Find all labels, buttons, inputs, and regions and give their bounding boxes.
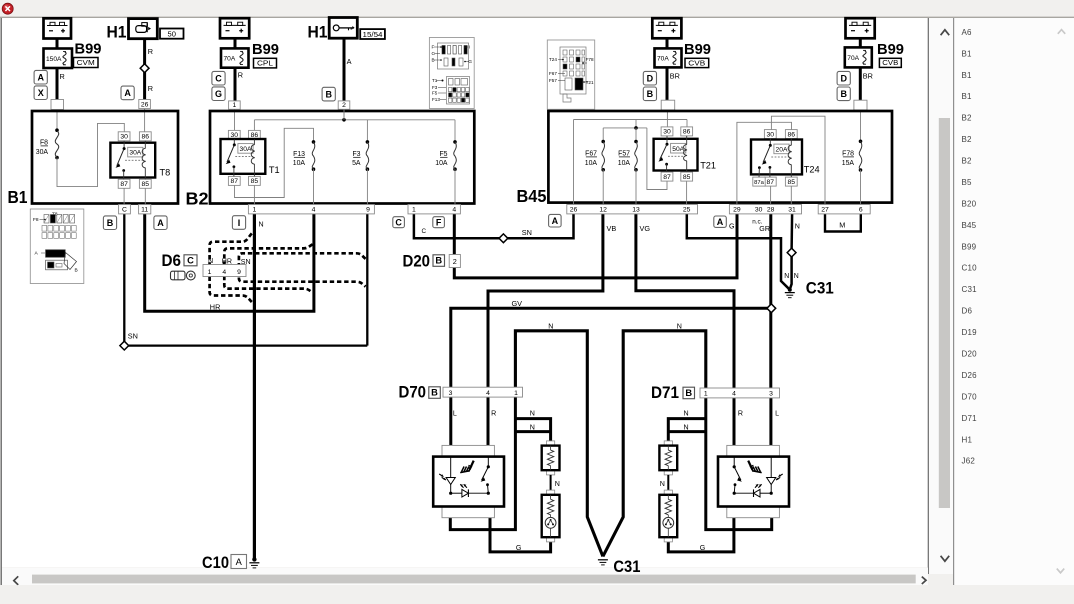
- svg-text:5A: 5A: [352, 160, 361, 167]
- svg-text:85: 85: [251, 178, 259, 185]
- svg-text:B99: B99: [684, 41, 711, 58]
- svg-text:T21: T21: [586, 80, 594, 85]
- svg-text:B2: B2: [962, 114, 973, 123]
- svg-text:B: B: [435, 256, 442, 266]
- svg-text:3: 3: [769, 391, 773, 398]
- svg-text:85: 85: [788, 179, 796, 186]
- svg-text:GV: GV: [512, 299, 523, 308]
- svg-text:N: N: [548, 322, 553, 330]
- svg-text:28: 28: [767, 207, 775, 214]
- svg-text:10A: 10A: [585, 160, 598, 167]
- svg-text:86: 86: [142, 134, 150, 141]
- svg-text:1: 1: [704, 391, 708, 398]
- svg-text:A6: A6: [962, 28, 973, 37]
- svg-text:N: N: [530, 424, 535, 432]
- svg-text:4: 4: [222, 269, 226, 276]
- svg-text:G: G: [700, 544, 706, 552]
- svg-text:87: 87: [120, 181, 128, 188]
- svg-text:F13: F13: [432, 97, 440, 102]
- svg-text:R: R: [238, 71, 243, 80]
- svg-text:F5: F5: [432, 91, 438, 96]
- svg-text:11: 11: [141, 207, 148, 214]
- svg-text:70A: 70A: [224, 56, 236, 63]
- svg-text:87: 87: [231, 178, 239, 185]
- svg-text:27: 27: [821, 207, 829, 214]
- svg-text:N: N: [795, 223, 800, 231]
- svg-text:T8: T8: [160, 168, 171, 178]
- svg-text:A: A: [37, 73, 44, 83]
- svg-text:F13: F13: [293, 151, 305, 158]
- svg-text:B1: B1: [962, 71, 973, 80]
- svg-text:N: N: [208, 257, 213, 265]
- svg-text:F3: F3: [352, 151, 360, 158]
- svg-text:F67: F67: [549, 71, 557, 76]
- svg-text:B: B: [840, 89, 847, 99]
- svg-text:B2: B2: [962, 135, 973, 144]
- svg-text:CVB: CVB: [688, 58, 705, 67]
- svg-text:CVB: CVB: [882, 58, 898, 67]
- svg-text:G: G: [516, 544, 522, 552]
- svg-text:T1: T1: [269, 165, 280, 175]
- svg-text:C: C: [422, 228, 427, 235]
- svg-text:T24: T24: [549, 57, 557, 62]
- svg-text:25: 25: [683, 207, 691, 214]
- svg-text:29: 29: [733, 207, 741, 214]
- svg-text:20A: 20A: [776, 147, 788, 154]
- svg-text:87: 87: [663, 174, 671, 181]
- svg-text:D: D: [647, 74, 654, 84]
- svg-text:30: 30: [767, 131, 775, 138]
- svg-text:T21: T21: [700, 161, 716, 171]
- svg-text:B: B: [325, 89, 332, 99]
- svg-text:N: N: [677, 322, 682, 330]
- svg-text:B99: B99: [252, 41, 279, 58]
- svg-text:4: 4: [732, 391, 736, 398]
- svg-text:R: R: [60, 72, 65, 81]
- svg-text:G: G: [468, 59, 472, 64]
- svg-text:C31: C31: [806, 279, 834, 298]
- svg-text:F78: F78: [586, 57, 594, 62]
- svg-text:A: A: [124, 88, 131, 98]
- svg-text:D70: D70: [399, 383, 427, 402]
- svg-text:2: 2: [453, 257, 457, 266]
- svg-text:B: B: [685, 388, 692, 398]
- svg-text:9: 9: [366, 207, 370, 214]
- svg-text:26: 26: [141, 101, 149, 108]
- svg-text:9: 9: [237, 269, 241, 276]
- svg-text:VB: VB: [607, 224, 617, 233]
- svg-text:A: A: [236, 557, 243, 567]
- svg-text:70A: 70A: [657, 56, 669, 63]
- svg-text:A: A: [552, 216, 559, 226]
- svg-text:30: 30: [755, 207, 763, 214]
- svg-text:B45: B45: [517, 186, 547, 206]
- svg-text:C: C: [122, 207, 127, 214]
- svg-text:F: F: [436, 218, 442, 228]
- svg-text:N: N: [684, 424, 689, 432]
- svg-text:SN: SN: [522, 228, 532, 237]
- svg-text:C: C: [187, 255, 194, 265]
- svg-text:30: 30: [120, 134, 128, 141]
- svg-text:R: R: [148, 47, 153, 56]
- svg-text:C10: C10: [202, 553, 229, 572]
- svg-text:B1: B1: [962, 92, 973, 101]
- svg-text:D71: D71: [962, 414, 978, 423]
- svg-text:HR: HR: [222, 257, 232, 265]
- svg-text:B2: B2: [962, 157, 973, 166]
- svg-text:B2: B2: [186, 189, 209, 209]
- svg-text:1: 1: [514, 390, 518, 397]
- svg-text:GR: GR: [759, 225, 770, 233]
- svg-text:B99: B99: [877, 41, 904, 58]
- svg-text:F57: F57: [549, 78, 557, 83]
- svg-text:N: N: [684, 410, 689, 418]
- svg-text:I: I: [469, 45, 470, 50]
- svg-text:2: 2: [342, 102, 346, 109]
- svg-text:D20: D20: [403, 252, 431, 271]
- svg-text:R: R: [738, 410, 743, 418]
- svg-text:15A: 15A: [842, 160, 855, 167]
- svg-text:T24: T24: [804, 165, 820, 175]
- svg-text:M: M: [839, 221, 845, 230]
- svg-text:31: 31: [788, 207, 796, 214]
- svg-text:N: N: [784, 273, 789, 280]
- svg-text:1: 1: [253, 207, 257, 214]
- svg-text:B1: B1: [962, 49, 973, 58]
- svg-text:1: 1: [412, 207, 416, 214]
- svg-text:N: N: [259, 221, 264, 229]
- svg-text:13: 13: [632, 207, 640, 214]
- svg-text:N: N: [794, 273, 799, 280]
- svg-text:26: 26: [570, 207, 578, 214]
- svg-text:87: 87: [767, 179, 775, 186]
- svg-text:D71: D71: [651, 383, 679, 402]
- svg-text:F78: F78: [842, 151, 854, 158]
- svg-text:H1: H1: [107, 23, 127, 42]
- svg-text:3: 3: [449, 390, 453, 397]
- svg-text:50A: 50A: [672, 146, 684, 153]
- svg-text:F8: F8: [33, 217, 39, 223]
- svg-text:C: C: [395, 218, 402, 228]
- svg-text:B99: B99: [75, 41, 102, 58]
- svg-text:SN: SN: [241, 258, 251, 266]
- svg-text:C31: C31: [962, 285, 978, 294]
- svg-text:B45: B45: [962, 221, 977, 230]
- svg-text:C: C: [215, 74, 222, 84]
- svg-text:10A: 10A: [435, 160, 448, 167]
- svg-text:H1: H1: [308, 23, 328, 42]
- svg-text:CPL: CPL: [257, 59, 273, 68]
- svg-text:G: G: [215, 89, 222, 99]
- svg-text:10A: 10A: [618, 160, 631, 167]
- svg-text:SN: SN: [128, 332, 138, 341]
- svg-text:B99: B99: [962, 242, 977, 251]
- svg-text:G: G: [729, 223, 735, 231]
- svg-text:30A: 30A: [129, 150, 141, 157]
- svg-text:86: 86: [788, 131, 796, 138]
- svg-text:15/54: 15/54: [363, 30, 383, 39]
- svg-text:4: 4: [452, 207, 456, 214]
- svg-text:12: 12: [599, 207, 607, 214]
- svg-text:I: I: [238, 218, 241, 228]
- svg-text:L: L: [453, 410, 457, 418]
- svg-text:A: A: [347, 57, 352, 66]
- svg-text:D6: D6: [162, 251, 182, 270]
- svg-text:1: 1: [233, 102, 237, 109]
- svg-text:B: B: [647, 89, 654, 99]
- svg-text:J62: J62: [962, 457, 976, 466]
- svg-text:F57: F57: [618, 151, 630, 158]
- svg-text:6: 6: [859, 207, 863, 214]
- svg-text:4: 4: [312, 207, 316, 214]
- svg-text:F3: F3: [432, 85, 438, 90]
- svg-text:N: N: [555, 480, 560, 488]
- svg-text:86: 86: [683, 129, 691, 136]
- svg-text:N: N: [530, 410, 535, 418]
- svg-text:R: R: [148, 84, 153, 93]
- svg-text:30A: 30A: [36, 149, 49, 156]
- svg-text:10A: 10A: [293, 160, 306, 167]
- svg-text:A: A: [157, 218, 164, 228]
- svg-text:B: B: [75, 268, 78, 274]
- svg-text:85: 85: [142, 181, 150, 188]
- svg-text:F5: F5: [439, 151, 447, 158]
- svg-text:B5: B5: [962, 178, 973, 187]
- svg-text:B: B: [107, 218, 114, 228]
- svg-text:30A: 30A: [240, 146, 252, 153]
- svg-text:D70: D70: [962, 392, 978, 401]
- svg-text:C10: C10: [962, 264, 978, 273]
- svg-text:4: 4: [486, 390, 490, 397]
- svg-text:B: B: [431, 388, 438, 398]
- svg-text:30: 30: [663, 129, 671, 136]
- svg-text:L: L: [775, 410, 779, 418]
- svg-text:1: 1: [208, 269, 212, 276]
- svg-text:HR: HR: [210, 303, 221, 312]
- svg-text:D6: D6: [962, 307, 973, 316]
- svg-text:R: R: [491, 410, 496, 418]
- svg-text:50: 50: [167, 29, 175, 38]
- svg-text:70A: 70A: [847, 55, 859, 62]
- svg-text:F8: F8: [40, 140, 48, 147]
- svg-text:CVM: CVM: [77, 58, 95, 67]
- svg-text:F67: F67: [585, 151, 597, 158]
- svg-text:VG: VG: [640, 224, 651, 233]
- svg-text:X: X: [38, 88, 44, 98]
- svg-text:85: 85: [683, 174, 691, 181]
- svg-text:A: A: [717, 217, 724, 227]
- svg-text:87a: 87a: [754, 180, 764, 186]
- svg-text:D26: D26: [962, 371, 978, 380]
- svg-text:D19: D19: [962, 328, 978, 337]
- svg-text:150A: 150A: [46, 56, 62, 63]
- svg-text:B20: B20: [962, 199, 977, 208]
- svg-text:BR: BR: [670, 72, 680, 81]
- svg-text:N: N: [660, 480, 665, 488]
- svg-text:C31: C31: [613, 557, 640, 576]
- svg-text:BR: BR: [863, 72, 873, 81]
- svg-text:D: D: [840, 74, 847, 84]
- svg-text:D20: D20: [962, 350, 978, 359]
- svg-text:H1: H1: [962, 435, 973, 444]
- svg-text:B1: B1: [8, 187, 28, 207]
